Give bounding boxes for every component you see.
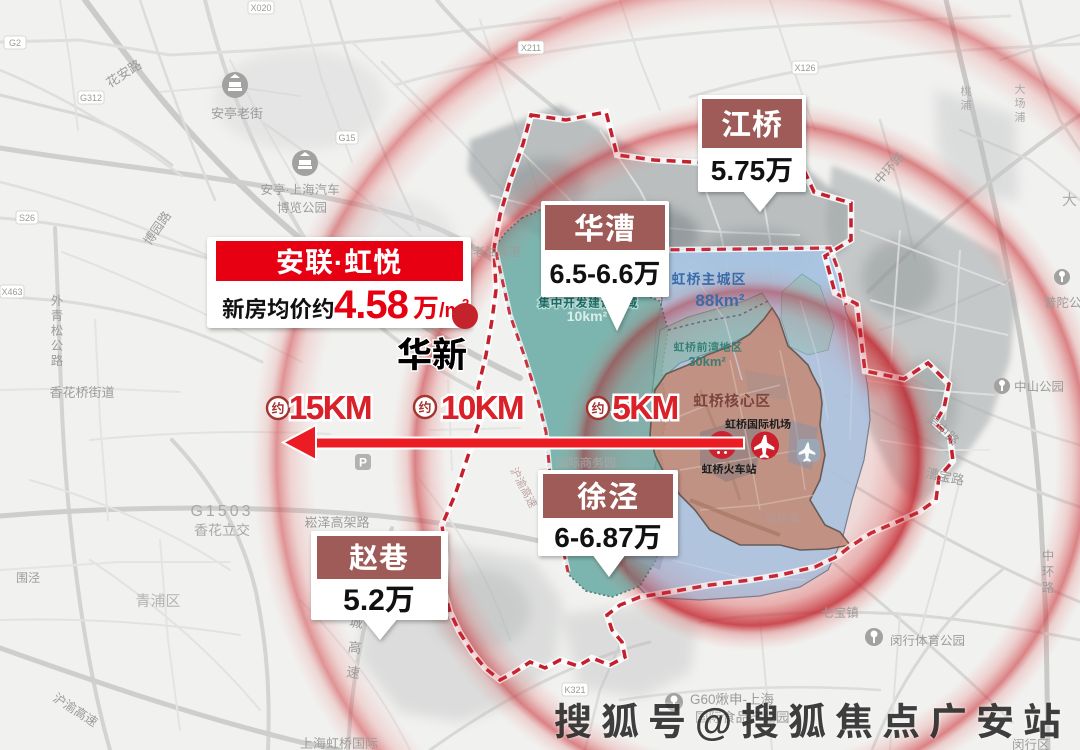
svg-text:虹桥火车站: 虹桥火车站 [702,463,757,476]
svg-text:6.5-6.6万: 6.5-6.6万 [549,259,660,289]
svg-text:闵行体育公园: 闵行体育公园 [890,634,965,648]
svg-text:万: 万 [413,293,439,323]
svg-text:普陀公园: 普陀公园 [1044,296,1080,310]
svg-text:安亭老街: 安亭老街 [211,106,263,121]
svg-text:大场浦: 大场浦 [1015,83,1026,124]
svg-text:七宝镇: 七宝镇 [821,606,859,620]
svg-text:15KM: 15KM [289,389,371,426]
svg-text:虹桥国际机场: 虹桥国际机场 [725,418,791,431]
svg-text:G15: G15 [338,133,355,143]
svg-text:香花立交: 香花立交 [194,522,250,538]
svg-text:安联·虹悦: 安联·虹悦 [276,247,402,278]
svg-text:6-6.87万: 6-6.87万 [554,522,661,553]
svg-text:安亭·上海汽车: 安亭·上海汽车 [260,183,339,197]
svg-text:赵巷: 赵巷 [349,543,409,575]
svg-text:G2: G2 [9,38,21,48]
svg-text:88km²: 88km² [695,291,744,310]
svg-text:虹桥核心区: 虹桥核心区 [693,393,771,410]
svg-text:5.75万: 5.75万 [711,155,794,186]
svg-text:虹桥镇: 虹桥镇 [766,512,799,525]
svg-text:约: 约 [591,401,604,416]
svg-text:G312: G312 [80,93,102,103]
svg-text:虹桥主城区: 虹桥主城区 [672,271,747,287]
svg-text:新房均价约: 新房均价约 [222,297,335,322]
svg-text:外青松公路: 外青松公路 [51,294,64,368]
svg-text:4.58: 4.58 [334,283,409,327]
svg-text:徐泾: 徐泾 [577,481,639,514]
svg-text:国际商务园: 国际商务园 [556,456,616,470]
svg-text:华漕: 华漕 [574,213,636,246]
svg-text:X211: X211 [521,43,541,53]
svg-text:中山公园: 中山公园 [1014,380,1064,394]
svg-text:崧泽高架路: 崧泽高架路 [304,515,369,530]
svg-text:虹桥前湾地区: 虹桥前湾地区 [674,341,743,354]
svg-text:G1503: G1503 [190,503,253,520]
svg-text:搜狐号@搜狐焦点广安站: 搜狐号@搜狐焦点广安站 [554,702,1070,744]
svg-text:5.2万: 5.2万 [343,584,415,617]
svg-text:华新: 华新 [397,336,467,375]
svg-text:X463: X463 [1,287,22,297]
svg-text:上海虹桥国际: 上海虹桥国际 [300,736,378,750]
svg-text:约: 约 [271,401,284,416]
svg-text:X126: X126 [794,63,815,73]
svg-text:X020: X020 [250,3,271,13]
svg-text:约: 约 [418,400,431,415]
svg-text:10km²: 10km² [567,308,608,324]
svg-text:博览公园: 博览公园 [277,201,327,215]
svg-text:青浦区: 青浦区 [135,593,180,610]
svg-text:中环路: 中环路 [1042,549,1055,595]
svg-text:围泾: 围泾 [16,571,40,585]
svg-text:10KM: 10KM [441,389,523,426]
svg-text:大: 大 [1062,192,1077,209]
svg-text:P: P [359,456,367,470]
svg-text:K321: K321 [564,685,585,695]
svg-text:老油库港: 老油库港 [473,245,521,259]
svg-text:S26: S26 [19,213,35,223]
svg-text:香花桥街道: 香花桥街道 [49,385,114,400]
svg-text:30km²: 30km² [688,354,726,369]
svg-text:5KM: 5KM [612,389,677,426]
svg-text:江桥: 江桥 [721,109,783,142]
